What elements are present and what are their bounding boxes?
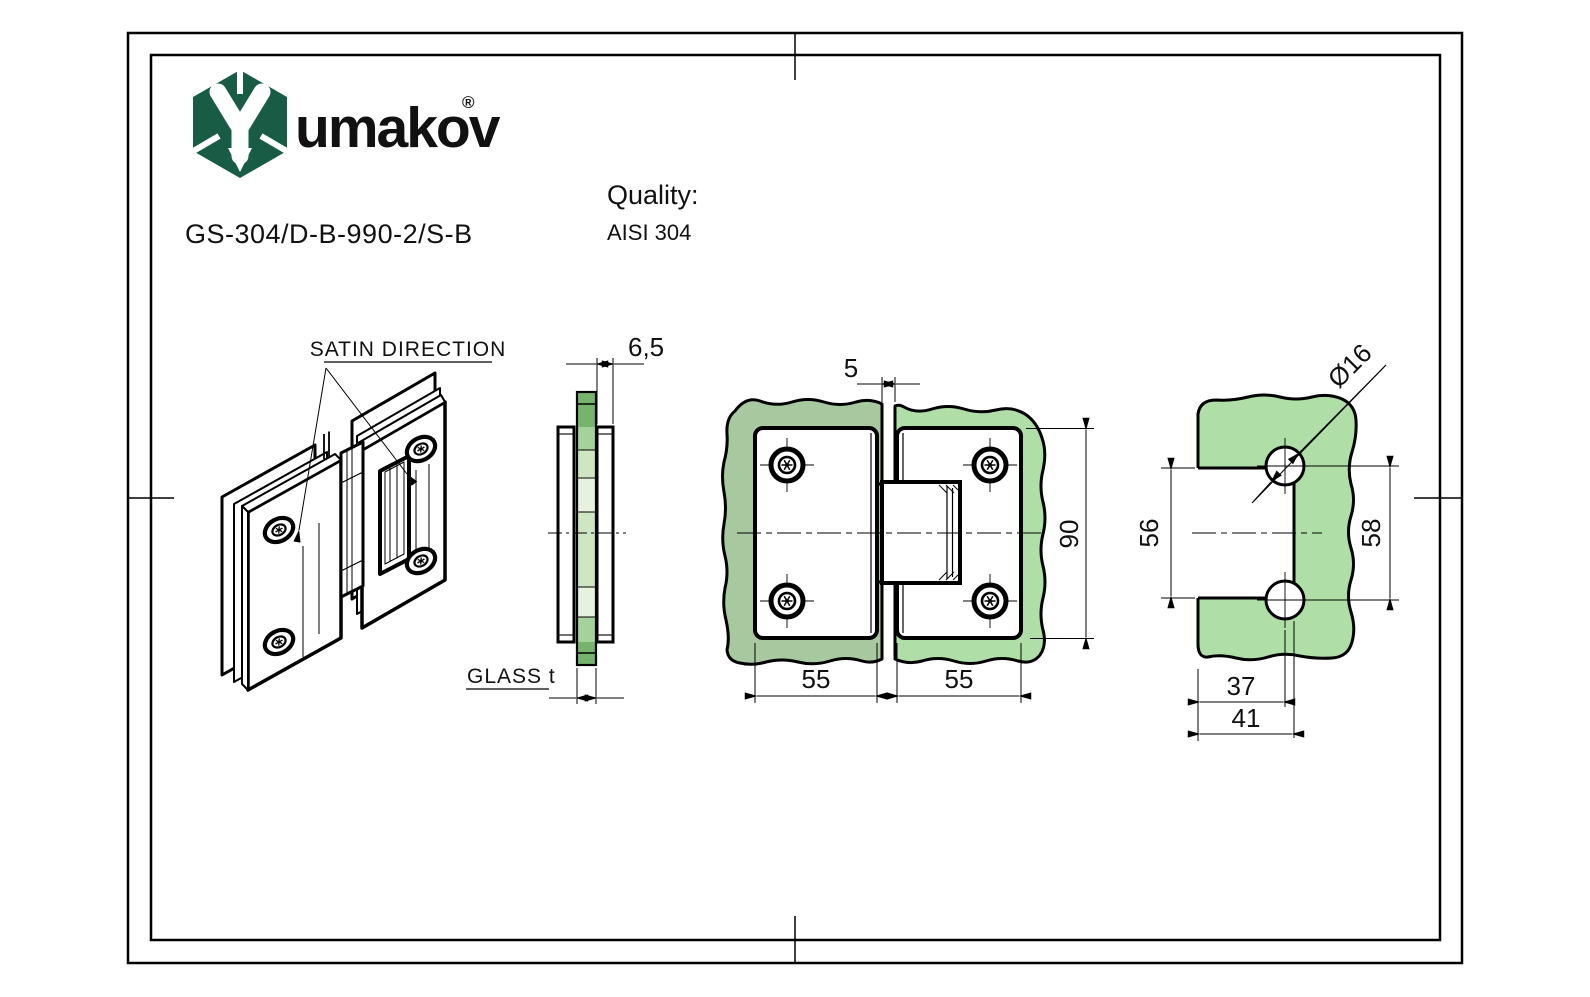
isometric-view: SATIN DIRECTION: [222, 338, 506, 690]
quality-value: AISI 304: [607, 220, 691, 245]
dim-glass-gap-text: 5: [844, 353, 858, 383]
quality-label: Quality:: [607, 180, 699, 210]
drawing-sheet: umakov ® GS-304/D-B-990-2/S-B Quality: A…: [0, 0, 1590, 997]
dim-glass-gap: [857, 377, 920, 402]
front-view: 5 90 55 55: [723, 353, 1095, 703]
iso-left-plate-side-bevel: [242, 506, 248, 690]
iso-right-assembly: [352, 373, 445, 628]
dim-plate-width-left-text: 55: [802, 664, 831, 694]
dim-plate-width-right-text: 55: [945, 664, 974, 694]
dim-hole-pitch-text: 58: [1356, 519, 1386, 548]
dim-plate-thickness-text: 6,5: [628, 332, 664, 362]
dim-cutout-height: [1161, 468, 1195, 598]
dim-cutout-height-text: 56: [1134, 519, 1164, 548]
dim-cutout-depth-text: 41: [1232, 703, 1261, 733]
side-view: 6,5 GLASS t: [466, 332, 664, 704]
registered-mark: ®: [462, 93, 475, 112]
glass-thickness-label: GLASS t: [467, 665, 556, 688]
side-right-plate: [597, 427, 613, 642]
part-number: GS-304/D-B-990-2/S-B: [185, 219, 473, 249]
dim-hole-center-offset-text: 37: [1227, 671, 1256, 701]
side-left-plate: [558, 427, 574, 642]
dim-hinge-height-text: 90: [1054, 520, 1084, 549]
logo: umakov ®: [190, 66, 501, 178]
dim-hole-diameter-text: Ø16: [1322, 338, 1378, 394]
satin-direction-label: SATIN DIRECTION: [310, 338, 507, 361]
iso-hinge-opening: [380, 456, 409, 574]
side-glass-strip: [577, 392, 596, 665]
technical-drawing: umakov ® GS-304/D-B-990-2/S-B Quality: A…: [0, 0, 1590, 997]
cutout-view: Ø16 56 58 37 41: [1134, 338, 1399, 741]
